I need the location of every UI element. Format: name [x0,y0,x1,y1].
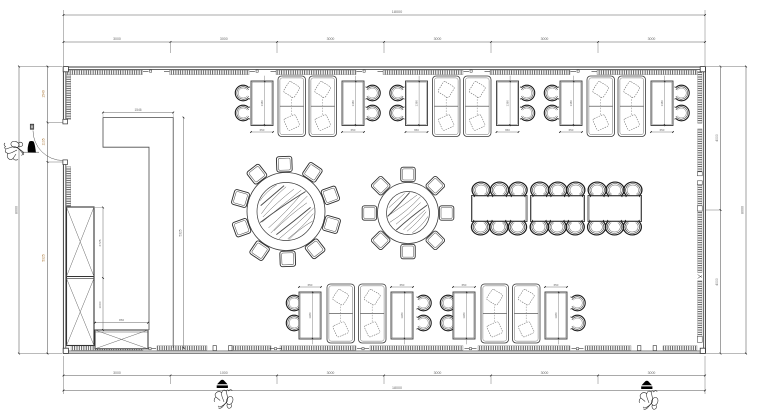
svg-text:3000: 3000 [327,37,335,41]
svg-text:3000: 3000 [541,37,549,41]
svg-text:650: 650 [462,283,467,287]
svg-text:1380: 1380 [462,312,466,319]
svg-text:1380: 1380 [505,100,509,107]
svg-text:1540: 1540 [42,90,46,98]
svg-text:1546: 1546 [134,108,141,112]
svg-text:1380: 1380 [400,312,404,319]
svg-text:1000: 1000 [98,301,102,308]
svg-text:1000: 1000 [220,371,228,375]
svg-text:3000: 3000 [434,371,442,375]
svg-text:3000: 3000 [648,371,656,375]
svg-text:650: 650 [554,283,559,287]
svg-text:650: 650 [660,128,665,132]
svg-text:650: 650 [505,128,510,132]
svg-text:18000: 18000 [392,10,403,14]
svg-text:5325: 5325 [42,254,46,262]
svg-text:5325: 5325 [178,229,182,236]
svg-text:1380: 1380 [569,100,573,107]
svg-text:3000: 3000 [648,37,656,41]
svg-text:2725: 2725 [98,239,102,246]
svg-text:650: 650 [414,128,419,132]
svg-text:4000: 4000 [715,278,719,286]
svg-text:1380: 1380 [260,100,264,107]
svg-text:1135: 1135 [42,138,46,145]
svg-text:1380: 1380 [414,100,418,107]
svg-text:650: 650 [400,283,405,287]
svg-text:650: 650 [260,128,265,132]
svg-text:950: 950 [119,318,124,322]
svg-text:1380: 1380 [351,100,355,107]
svg-text:4000: 4000 [715,134,719,142]
svg-text:3000: 3000 [113,371,121,375]
svg-text:650: 650 [308,283,313,287]
svg-text:8000: 8000 [741,206,745,214]
svg-text:8000: 8000 [15,206,19,214]
svg-text:3000: 3000 [113,37,121,41]
svg-text:18000: 18000 [392,386,402,390]
svg-text:650: 650 [351,128,356,132]
svg-text:650: 650 [569,128,574,132]
svg-text:1380: 1380 [554,312,558,319]
svg-text:1380: 1380 [660,100,664,107]
svg-text:3000: 3000 [434,37,442,41]
svg-text:1380: 1380 [308,312,312,319]
svg-text:3000: 3000 [220,37,228,41]
svg-text:3000: 3000 [327,371,335,375]
svg-text:3000: 3000 [541,371,549,375]
